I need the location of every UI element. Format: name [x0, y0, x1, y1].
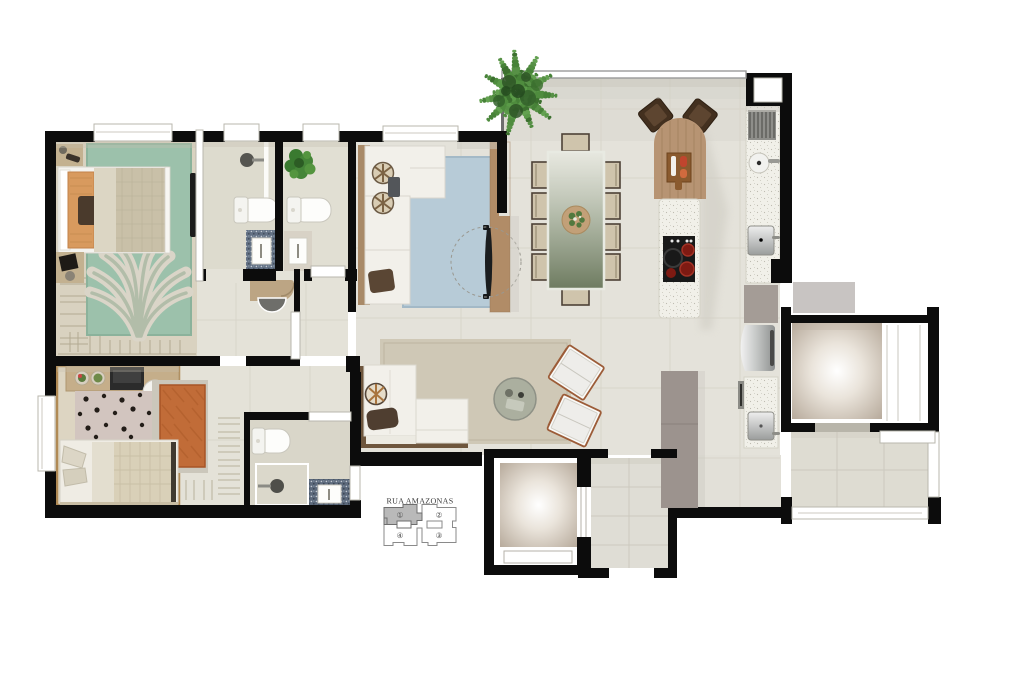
svg-text:①: ① — [397, 511, 404, 520]
svg-text:RUA AMAZONAS: RUA AMAZONAS — [387, 497, 454, 506]
svg-text:③: ③ — [436, 531, 443, 540]
svg-text:②: ② — [436, 511, 443, 520]
svg-text:④: ④ — [397, 531, 404, 540]
